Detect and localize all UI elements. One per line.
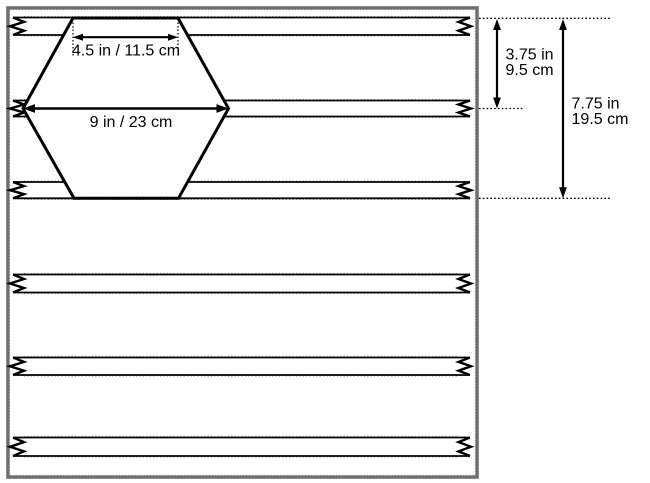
svg-text:9.5 cm: 9.5 cm	[506, 62, 554, 79]
svg-text:4.5 in / 11.5 cm: 4.5 in / 11.5 cm	[72, 43, 180, 60]
svg-text:9 in / 23 cm: 9 in / 23 cm	[90, 114, 173, 131]
svg-text:3.75 in: 3.75 in	[506, 47, 554, 64]
svg-text:7.75 in: 7.75 in	[572, 95, 620, 112]
svg-text:19.5 cm: 19.5 cm	[572, 111, 629, 128]
